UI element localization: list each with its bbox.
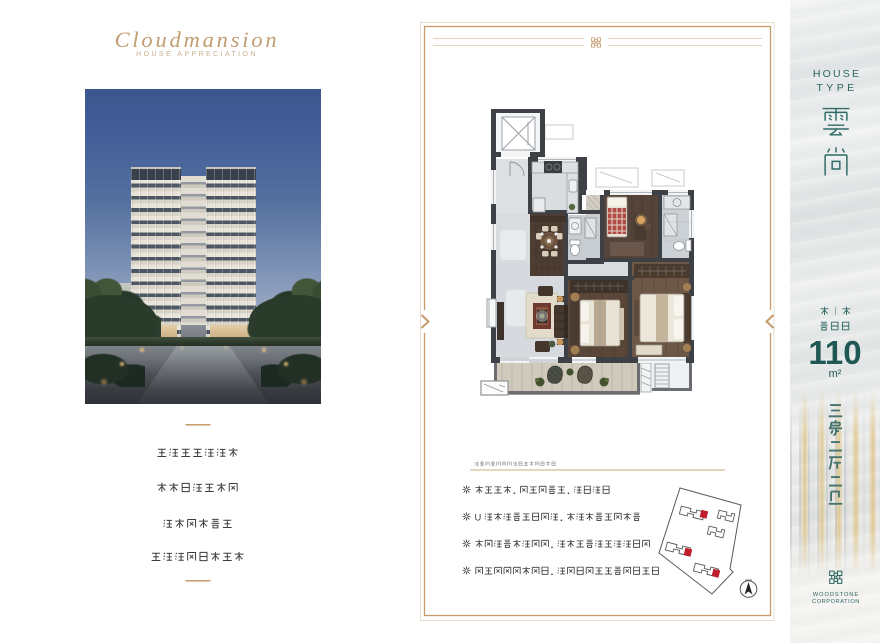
svg-text:TYPE: TYPE — [816, 82, 857, 94]
svg-text:110: 110 — [808, 334, 861, 371]
svg-text:U: U — [475, 511, 482, 522]
svg-text:CORPORATION: CORPORATION — [812, 599, 860, 605]
svg-text:m²: m² — [829, 368, 842, 380]
svg-text:WOODSTONE: WOODSTONE — [813, 592, 859, 598]
svg-text:HOUSE: HOUSE — [813, 68, 861, 80]
